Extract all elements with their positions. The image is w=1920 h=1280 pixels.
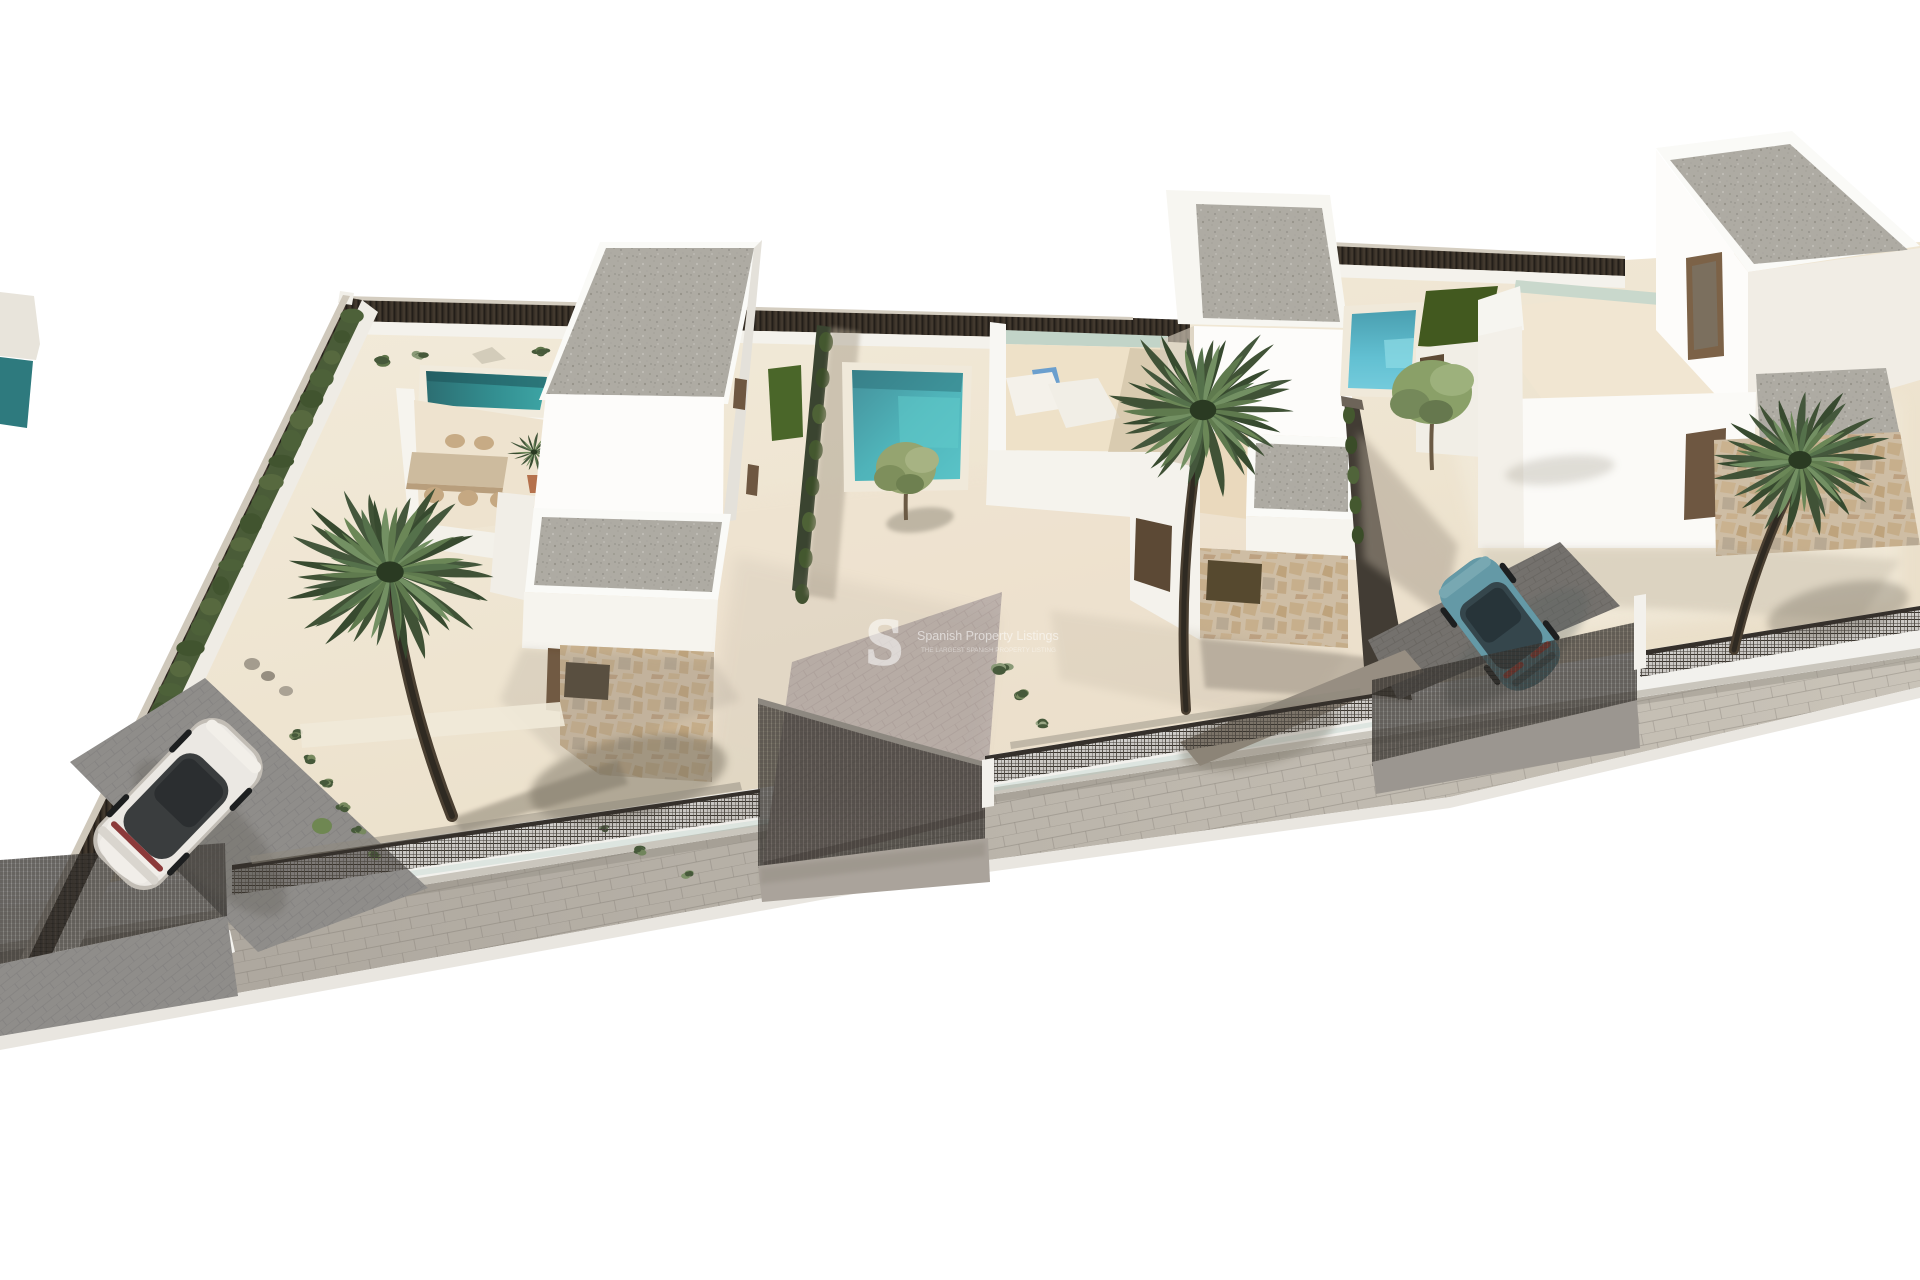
svg-text:S: S (866, 606, 903, 679)
svg-text:Spanish Property Listings: Spanish Property Listings (917, 629, 1059, 643)
svg-text:THE LARGEST SPANISH PROPERTY L: THE LARGEST SPANISH PROPERTY LISTING (921, 647, 1056, 654)
